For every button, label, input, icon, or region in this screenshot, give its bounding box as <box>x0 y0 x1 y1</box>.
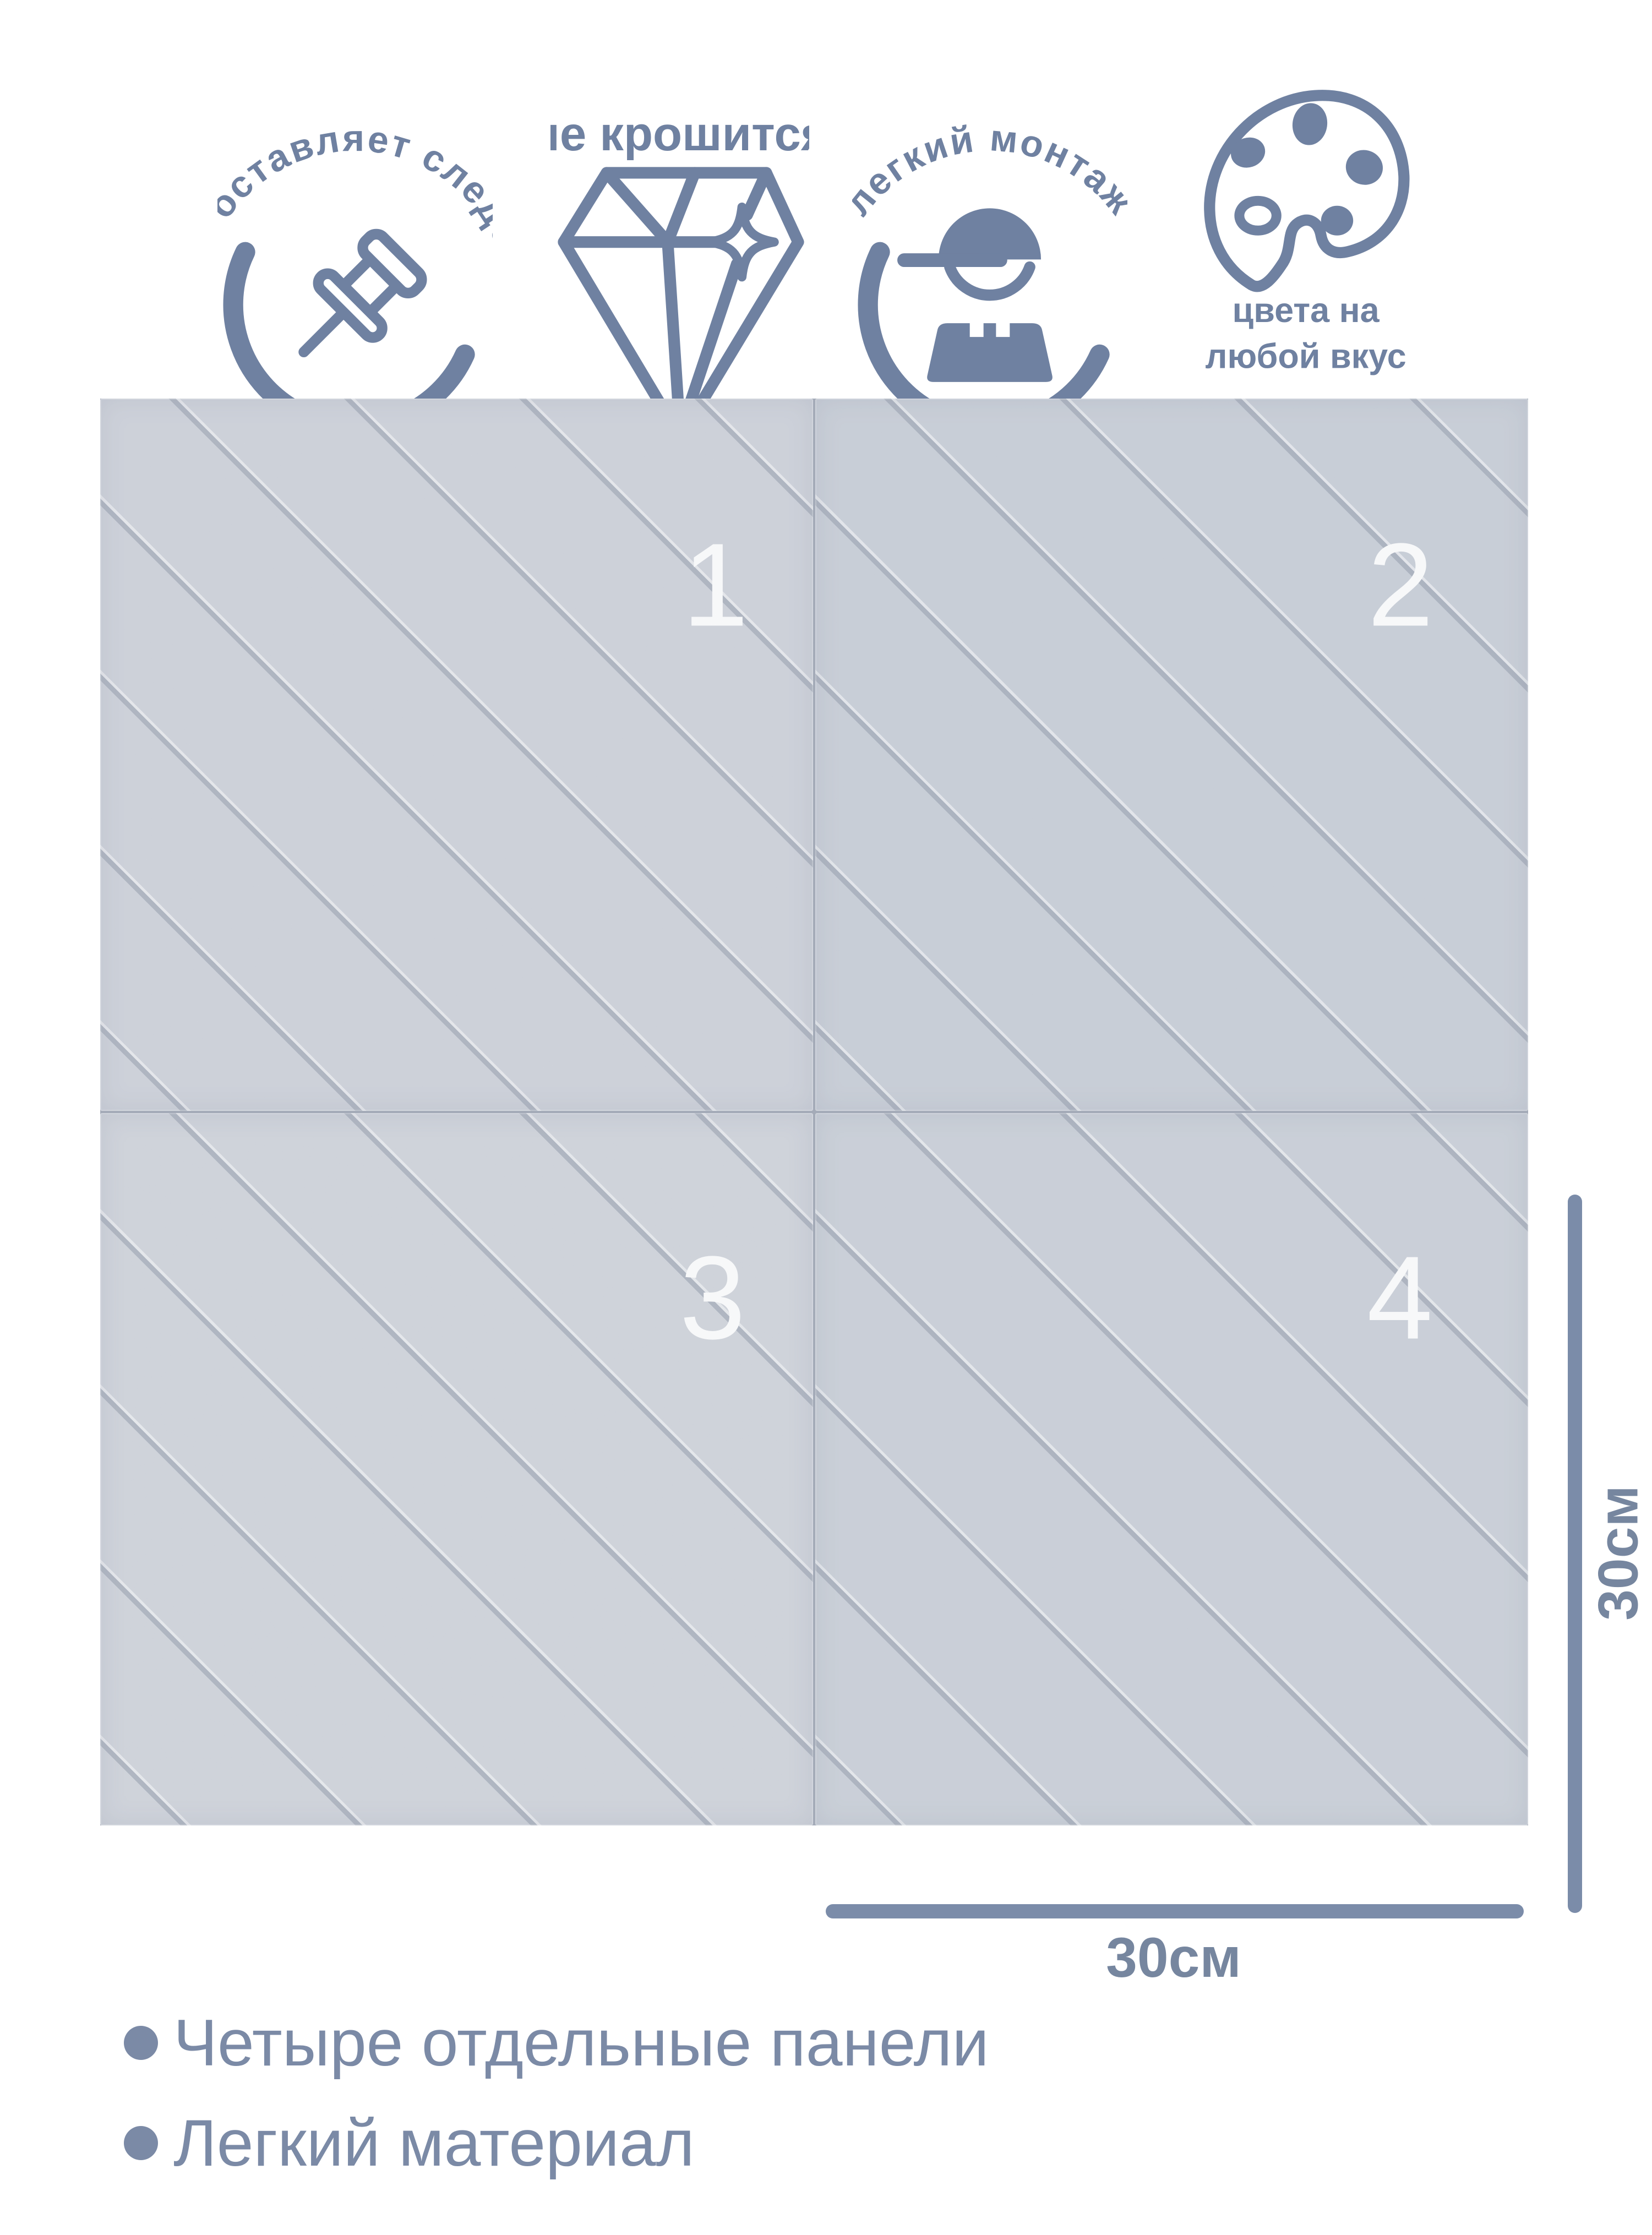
bullet-label: Четыре отдельные панели <box>173 2005 989 2081</box>
paint-blob <box>1321 206 1353 236</box>
bullet-item-four-panels: Четыре отдельные панели <box>124 2005 989 2081</box>
bullet-dot <box>124 2126 158 2160</box>
feature-label-line2: любой вкус <box>1206 337 1406 375</box>
worker-icon <box>897 208 1053 381</box>
bullet-item-light-material: Легкий материал <box>124 2105 695 2181</box>
diamond-facet <box>747 173 766 215</box>
panel-number-1: 1 <box>683 525 749 644</box>
height-dimension-line <box>1568 1195 1582 1913</box>
felt-panel-2: 2 <box>815 399 1528 1111</box>
diamond-facet <box>668 173 695 242</box>
feature-label: не крошится <box>550 107 809 161</box>
bullet-label: Легкий материал <box>173 2105 695 2181</box>
felt-panel-1: 1 <box>100 399 813 1111</box>
product-image: не оставляет следов не крошится легк <box>0 0 1652 2235</box>
width-dimension-line <box>826 1904 1524 1918</box>
feature-easy-install: легкий монтаж <box>852 91 1127 438</box>
height-dimension-label: 30см <box>1586 1443 1651 1663</box>
felt-panel-4: 4 <box>815 1113 1528 1825</box>
feature-label-curved: не оставляет следов <box>217 117 493 278</box>
feature-label-line1: цвета на <box>1233 291 1380 330</box>
pushpin-icon <box>275 226 430 381</box>
bullet-dot <box>124 2026 158 2060</box>
worker-face <box>950 267 1029 295</box>
width-dimension-label: 30см <box>1064 1926 1284 1990</box>
diamond-facet <box>607 173 668 242</box>
worker-cap <box>939 208 1041 259</box>
felt-panel-3: 3 <box>100 1113 813 1825</box>
panel-number-2: 2 <box>1367 525 1433 644</box>
panel-grid: 1 2 3 4 <box>100 399 1528 1825</box>
diamond-icon <box>564 173 798 438</box>
feature-colors: цвета на любой вкус <box>1184 77 1431 396</box>
feature-label-curved: легкий монтаж <box>852 117 1127 223</box>
panel-number-3: 3 <box>680 1239 746 1357</box>
feature-no-marks: не оставляет следов <box>217 91 493 438</box>
sparkle-icon <box>710 207 775 277</box>
panel-number-4: 4 <box>1367 1239 1433 1357</box>
feature-no-crumble: не крошится <box>550 88 809 446</box>
pushpin-needle <box>304 315 341 352</box>
palette-icon <box>1209 95 1404 286</box>
worker-torso <box>927 323 1053 382</box>
